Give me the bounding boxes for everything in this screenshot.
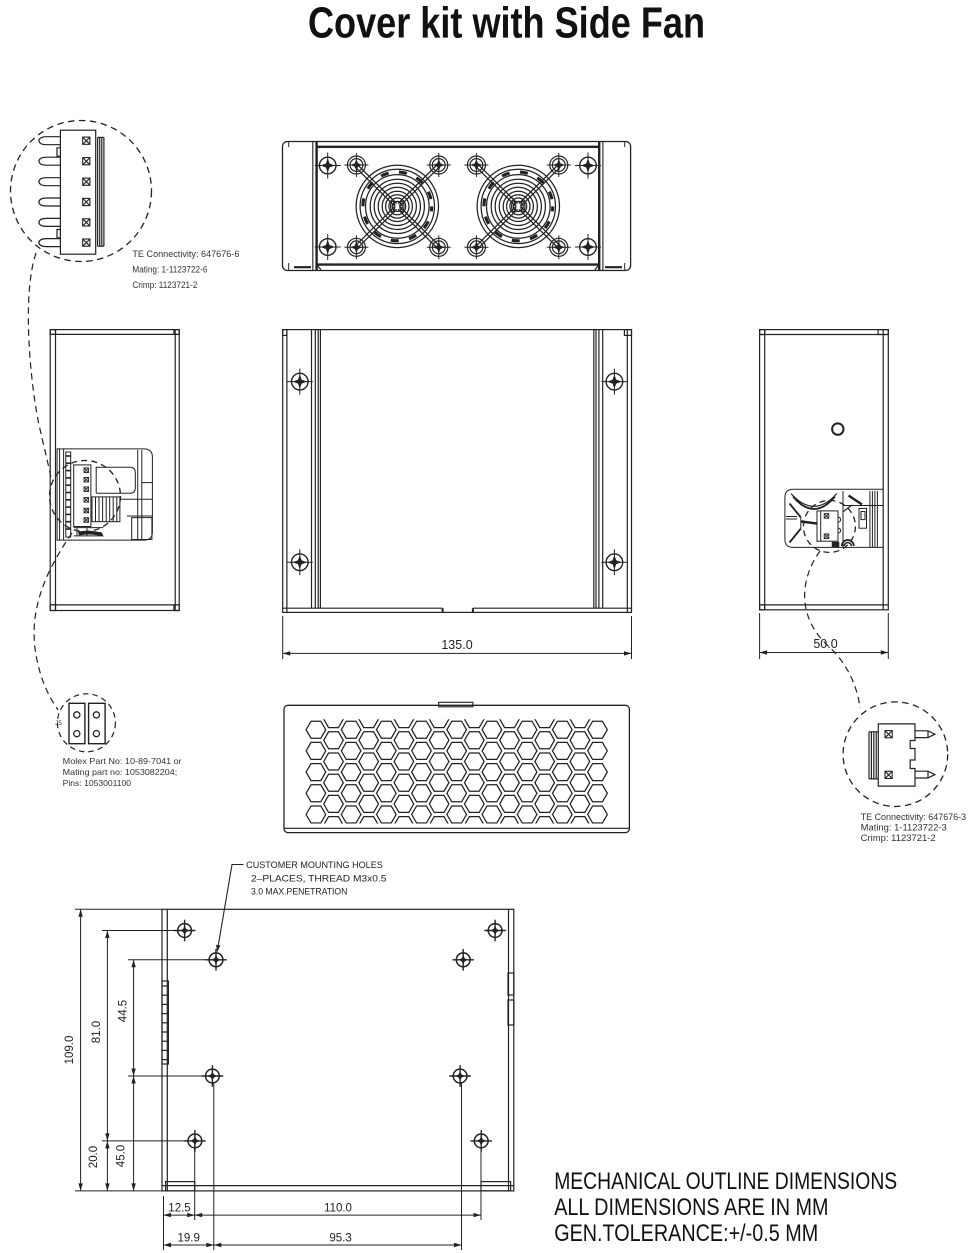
svg-text:TE Connectivity: 647676-3: TE Connectivity: 647676-3	[861, 812, 966, 822]
svg-text:109.0: 109.0	[64, 1036, 76, 1065]
svg-text:50.0: 50.0	[813, 637, 837, 651]
svg-text:95.3: 95.3	[329, 1232, 351, 1244]
svg-text:MECHANICAL OUTLINE DIMENSIONS: MECHANICAL OUTLINE DIMENSIONS	[554, 1168, 897, 1195]
svg-text:Mating part no: 1053082204;: Mating part no: 1053082204;	[63, 767, 178, 777]
svg-text:Pins: 1053001100: Pins: 1053001100	[63, 778, 132, 788]
svg-text:135.0: 135.0	[441, 638, 472, 652]
svg-text:Crimp: 1123721-2: Crimp: 1123721-2	[861, 833, 936, 843]
svg-text:20.0: 20.0	[88, 1146, 100, 1168]
svg-text:Molex Part No: 10-89-7041 or: Molex Part No: 10-89-7041 or	[63, 756, 182, 766]
svg-text:Mating: 1-1123722-3: Mating: 1-1123722-3	[861, 822, 947, 832]
svg-text:Mating: 1-1123722-6: Mating: 1-1123722-6	[132, 264, 207, 274]
svg-text:110.0: 110.0	[324, 1203, 352, 1215]
svg-text:19.9: 19.9	[178, 1232, 200, 1244]
svg-text:J5: J5	[55, 720, 62, 727]
svg-text:44.5: 44.5	[118, 1000, 130, 1022]
svg-text:12.5: 12.5	[168, 1203, 190, 1215]
svg-text:45.0: 45.0	[116, 1145, 128, 1167]
svg-text:Cover kit with Side Fan: Cover kit with Side Fan	[308, 0, 705, 48]
svg-text:Crimp: 1123721-2: Crimp: 1123721-2	[132, 280, 197, 290]
svg-text:CUSTOMER MOUNTING HOLES: CUSTOMER MOUNTING HOLES	[246, 860, 383, 870]
svg-text:81.0: 81.0	[91, 1021, 103, 1043]
svg-text:TE Connectivity: 647676-6: TE Connectivity: 647676-6	[132, 249, 239, 259]
svg-text:3.0 MAX.PENETRATION: 3.0 MAX.PENETRATION	[251, 887, 347, 897]
svg-text:GEN.TOLERANCE:+/-0.5 MM: GEN.TOLERANCE:+/-0.5 MM	[554, 1220, 818, 1247]
svg-text:ALL DIMENSIONS ARE IN MM: ALL DIMENSIONS ARE IN MM	[554, 1194, 828, 1221]
svg-text:2–PLACES, THREAD M3x0.5: 2–PLACES, THREAD M3x0.5	[251, 873, 387, 883]
